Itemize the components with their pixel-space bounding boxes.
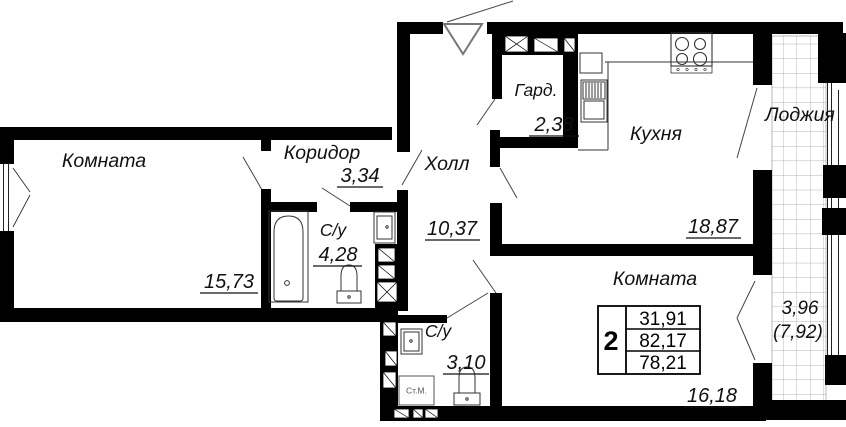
summary-table: 2 31,91 82,17 78,21	[598, 306, 700, 374]
plan-background	[0, 0, 846, 427]
room2-label: Комната	[613, 268, 697, 290]
bath1-label: С/у	[320, 220, 348, 240]
wardrobe-label: Гард.	[515, 80, 558, 100]
room2-area: 16,18	[687, 385, 737, 407]
room1-label: Комната	[62, 150, 146, 172]
room1-area: 15,73	[204, 271, 254, 293]
loggia-tiles	[772, 36, 826, 402]
loggia-label: Лоджия	[763, 104, 835, 126]
kitchen-area: 18,87	[688, 216, 739, 238]
living-area: 31,91	[639, 309, 687, 330]
loggia-area: 3,96	[782, 298, 819, 319]
loggia-corner-notch	[834, 385, 846, 400]
floor-plan: Ст.М. Комната 15,73 Коридор 3,34 Холл 10…	[0, 0, 846, 427]
rooms-count: 2	[603, 326, 618, 356]
reduced-area: 78,21	[639, 353, 687, 374]
bath2-label: С/у	[425, 321, 453, 341]
bath2-area: 3,10	[447, 352, 486, 374]
hall-label: Холл	[424, 153, 470, 175]
loggia-area-coeff: (7,92)	[773, 322, 823, 343]
total-area: 82,17	[639, 331, 687, 352]
washing-machine-label: Ст.М.	[406, 386, 427, 396]
floor-plan-svg: Ст.М. Комната 15,73 Коридор 3,34 Холл 10…	[0, 0, 846, 427]
wardrobe-area: 2,38	[534, 114, 574, 136]
bath1-area: 4,28	[319, 244, 358, 266]
corridor-area: 3,34	[341, 165, 380, 187]
hall-area: 10,37	[427, 218, 478, 240]
kitchen-label: Кухня	[630, 123, 683, 145]
corridor-label: Коридор	[284, 142, 361, 164]
